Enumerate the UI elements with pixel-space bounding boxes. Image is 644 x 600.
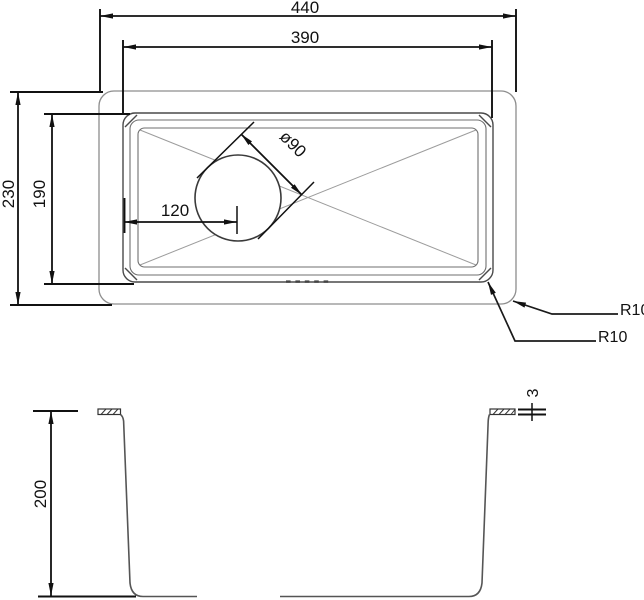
left-flange xyxy=(98,409,121,415)
technical-drawing-svg: 440 390 230 190 xyxy=(0,0,644,600)
leader-r10-outer: R10 xyxy=(513,301,644,319)
dim-190: 190 xyxy=(30,114,134,284)
dim-200-label: 200 xyxy=(31,480,50,508)
dim-390-label: 390 xyxy=(291,28,319,47)
r10-outer-label: R10 xyxy=(620,302,644,319)
r10-inner-label: R10 xyxy=(598,329,627,346)
dim-190-label: 190 xyxy=(30,180,49,208)
dim-230-label: 230 xyxy=(0,180,18,208)
dim-440-label: 440 xyxy=(291,0,319,17)
dim-390: 390 xyxy=(123,28,492,118)
dim-3-label: 3 xyxy=(525,388,542,397)
dim-120-label: 120 xyxy=(161,201,189,220)
top-view: 440 390 230 190 xyxy=(0,0,644,346)
dim-230: 230 xyxy=(0,92,112,305)
right-flange xyxy=(490,409,515,415)
dim-diameter-label: ø90 xyxy=(276,127,310,161)
section-view: 200 3 xyxy=(31,388,546,596)
dim-3: 3 xyxy=(518,388,546,421)
dim-200: 200 xyxy=(31,411,136,597)
section-right-wall xyxy=(280,415,490,597)
section-left-wall xyxy=(121,415,198,597)
